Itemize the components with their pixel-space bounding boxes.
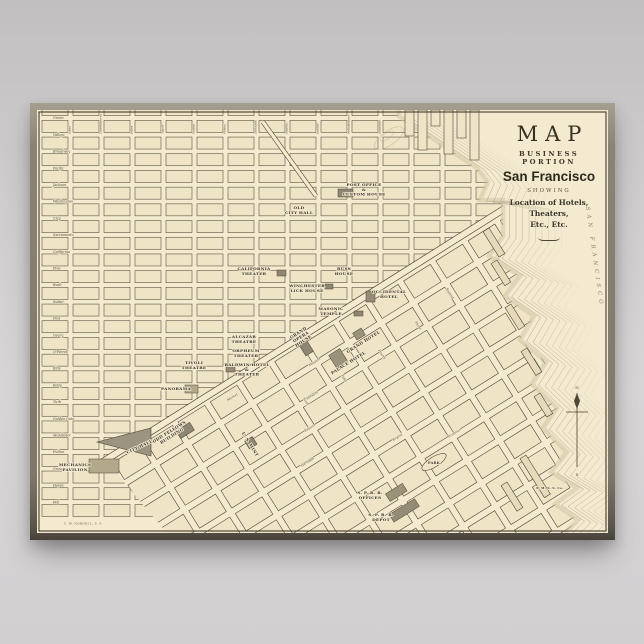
street-label: Green xyxy=(53,116,64,120)
street-label: California xyxy=(53,250,70,254)
street-label-vertical: Taylor xyxy=(161,124,165,134)
street-label: Ellis xyxy=(52,367,61,371)
landmark-label: ORPHEUMTHEATER xyxy=(232,348,259,358)
landmark-label: RUSSHOUSE xyxy=(335,266,354,276)
publisher-credit: C. W. NORDELL, S. F. xyxy=(64,522,103,526)
street-label: Pacific xyxy=(52,166,64,170)
map-subtitle-theaters: Theaters, xyxy=(494,209,604,218)
street-label: Eddy xyxy=(52,383,62,387)
street-label: Fulton xyxy=(52,450,64,454)
map-title: MAP xyxy=(494,122,604,146)
landmark-label: PANORAMA xyxy=(161,386,191,391)
building xyxy=(89,459,119,473)
pier xyxy=(444,110,453,154)
map-subtitle-city: San Francisco xyxy=(494,169,604,184)
street-label: Jackson xyxy=(52,183,66,187)
landmark-label: S. P. R. R.OFFICES xyxy=(357,490,383,500)
street-label: Sacramento xyxy=(53,233,74,237)
street-label: Geary xyxy=(53,333,63,337)
map-subtitle-showing: SHOWING xyxy=(494,188,604,194)
pier xyxy=(405,110,414,136)
map-subtitle-business-portion: BUSINESS PORTION xyxy=(494,150,604,166)
street-label-vertical: Jones xyxy=(130,125,134,135)
street-label-vertical: Kearny xyxy=(316,123,320,134)
street-label: Pine xyxy=(52,267,61,271)
street-label-vertical: Powell xyxy=(223,124,227,134)
landmark-label: CALIFORNIATHEATER xyxy=(238,266,271,276)
street-label: Broadway xyxy=(52,150,70,154)
street-label-vertical: Dupont xyxy=(285,122,289,134)
street-label: Bush xyxy=(52,283,62,287)
framed-map-poster: GreenVallejoBroadwayPacificJacksonWashin… xyxy=(30,103,615,540)
map-paper: GreenVallejoBroadwayPacificJacksonWashin… xyxy=(37,110,608,533)
street-label: Turk xyxy=(53,400,61,404)
street-label: O'Farrell xyxy=(53,350,68,354)
wall-background: { "scene": { "wall_color": "#d2d0d1", "f… xyxy=(0,0,644,644)
street-label-vertical: Hyde xyxy=(68,126,72,134)
street-label: Golden Gate xyxy=(53,417,74,421)
building xyxy=(277,270,286,276)
flourish-ornament xyxy=(538,234,560,241)
street-label: Sutter xyxy=(53,300,64,304)
landmark-label: PARK xyxy=(428,461,441,465)
map-subtitle-etc: Etc., Etc. xyxy=(494,220,604,229)
street-label-vertical: Mason xyxy=(192,124,196,134)
street-label: Fell xyxy=(52,500,59,504)
landmark-label: P. M. S. S. Co. xyxy=(536,486,563,490)
street-label: Post xyxy=(52,317,61,321)
landmark-label: TIVOLITHEATRE xyxy=(182,360,207,370)
compass-north-label: N xyxy=(575,385,579,390)
street-label-vertical: Leavenworth xyxy=(99,114,103,134)
building xyxy=(325,284,333,289)
street-label: Vallejo xyxy=(53,133,64,137)
street-label-vertical: Sansome xyxy=(378,120,382,134)
landmark-label: ALCAZARTHEATRE xyxy=(231,334,256,344)
pier xyxy=(457,110,466,138)
map-subtitle-hotels: Location of Hotels, xyxy=(494,198,604,207)
pier xyxy=(470,110,479,160)
pier xyxy=(418,110,427,150)
map-title-block: MAP BUSINESS PORTION San Francisco SHOWI… xyxy=(494,122,604,241)
street-label: Hayes xyxy=(52,484,64,488)
landmark-label: MECHANICSPAVILION xyxy=(59,462,92,472)
street-label: Washington xyxy=(53,200,73,204)
landmark-label: WINCHESTERLICK HOUSE xyxy=(288,283,325,293)
landmark-label: MASONICTEMPLE xyxy=(318,306,344,316)
street-label: Clay xyxy=(53,216,61,220)
compass-south-label: S xyxy=(576,472,579,477)
building xyxy=(354,311,363,316)
street-label-vertical: Stockton xyxy=(254,120,258,134)
street-label-vertical: Montgomery xyxy=(347,114,351,134)
street-label: McAllister xyxy=(52,434,71,438)
